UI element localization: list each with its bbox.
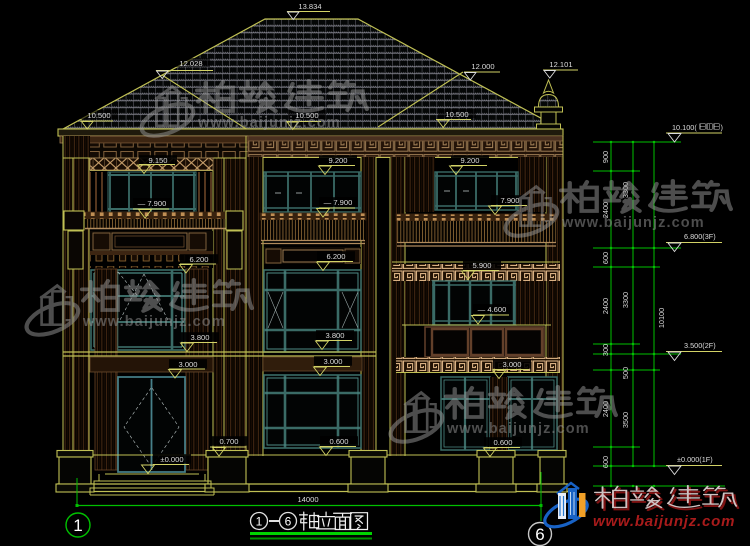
svg-text:±0.000(1F): ±0.000(1F) bbox=[677, 455, 713, 464]
svg-text:10100: 10100 bbox=[657, 308, 666, 328]
svg-text:0.600: 0.600 bbox=[329, 437, 348, 446]
svg-text:900: 900 bbox=[601, 151, 610, 163]
svg-text:12.101: 12.101 bbox=[549, 60, 572, 69]
svg-text:0.700: 0.700 bbox=[219, 437, 238, 446]
svg-text:5.900: 5.900 bbox=[472, 261, 491, 270]
svg-text:3300: 3300 bbox=[621, 292, 630, 308]
svg-text:14000: 14000 bbox=[297, 495, 318, 504]
svg-text:6: 6 bbox=[535, 525, 544, 544]
svg-text:3.000: 3.000 bbox=[178, 360, 197, 369]
svg-text:— 7.900: — 7.900 bbox=[324, 198, 353, 207]
svg-text:10.100(: 10.100( bbox=[672, 123, 697, 132]
svg-text:6.200: 6.200 bbox=[189, 255, 208, 264]
svg-text:12.028: 12.028 bbox=[179, 59, 202, 68]
svg-text:2400: 2400 bbox=[601, 298, 610, 314]
svg-text:3.000: 3.000 bbox=[323, 357, 342, 366]
svg-text:12.000: 12.000 bbox=[471, 62, 494, 71]
svg-text:0.600: 0.600 bbox=[493, 438, 512, 447]
svg-text:): ) bbox=[721, 123, 723, 132]
svg-text:— 4.600: — 4.600 bbox=[478, 305, 507, 314]
svg-text:300: 300 bbox=[601, 344, 610, 356]
svg-text:600: 600 bbox=[601, 456, 610, 468]
svg-text:3.000: 3.000 bbox=[502, 360, 521, 369]
svg-text:1: 1 bbox=[256, 515, 263, 529]
svg-text:www.baijunjz.com: www.baijunjz.com bbox=[593, 513, 735, 530]
svg-text:3.800: 3.800 bbox=[190, 333, 209, 342]
svg-text:— 7.900: — 7.900 bbox=[138, 199, 167, 208]
svg-text:500: 500 bbox=[621, 367, 630, 379]
svg-text:10.500: 10.500 bbox=[87, 111, 110, 120]
svg-text:7.900: 7.900 bbox=[500, 196, 519, 205]
svg-text:13.834: 13.834 bbox=[298, 2, 321, 11]
svg-text:3.500(2F): 3.500(2F) bbox=[684, 341, 716, 350]
svg-text:9.200: 9.200 bbox=[328, 156, 347, 165]
svg-text:3.800: 3.800 bbox=[325, 331, 344, 340]
svg-text:10.500: 10.500 bbox=[445, 110, 468, 119]
svg-text:6.800(3F): 6.800(3F) bbox=[684, 232, 716, 241]
svg-text:6.200: 6.200 bbox=[326, 252, 345, 261]
svg-text:9.200: 9.200 bbox=[460, 156, 479, 165]
svg-text:9.150: 9.150 bbox=[148, 156, 167, 165]
svg-text:±0.000: ±0.000 bbox=[160, 455, 183, 464]
svg-text:600: 600 bbox=[601, 252, 610, 264]
svg-text:3500: 3500 bbox=[621, 412, 630, 428]
svg-text:6: 6 bbox=[285, 515, 292, 529]
svg-text:1: 1 bbox=[73, 516, 82, 535]
